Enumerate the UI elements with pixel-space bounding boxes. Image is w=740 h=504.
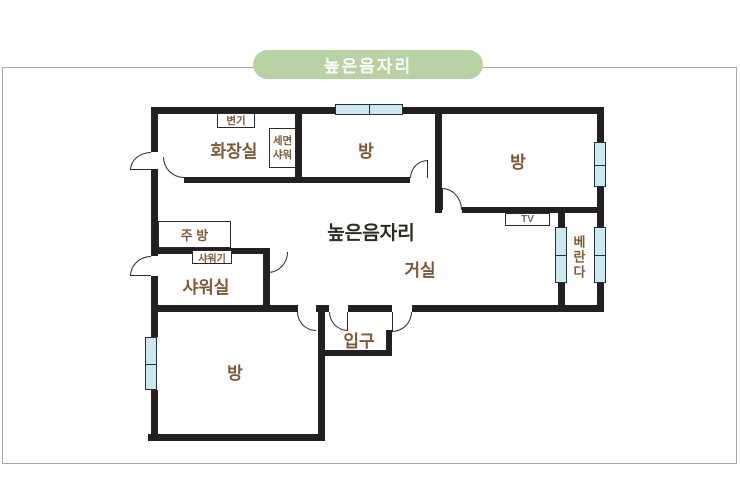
window-right-room	[594, 142, 606, 187]
washbasin-label: 세면	[273, 134, 292, 148]
window-bottom-room	[145, 337, 157, 390]
window-pane-divider	[595, 255, 605, 256]
content-frame	[2, 67, 737, 464]
shower-head-box: 샤워기	[192, 250, 232, 264]
label-entrance: 입구	[329, 327, 389, 352]
wall-veranda-left-upper	[558, 213, 565, 227]
wall-exterior-left-upper	[151, 107, 158, 152]
window-veranda-left	[555, 227, 567, 283]
wall-bottom-room-bottom	[148, 434, 325, 441]
toilet-box: 변기	[217, 113, 255, 128]
wall-exterior-right-upper	[597, 107, 604, 142]
label-bathroom: 화장실	[194, 137, 274, 162]
shower-label: 샤워	[273, 148, 292, 162]
wall-living-bottom-a	[151, 305, 298, 312]
wall-veranda-left-lower	[558, 283, 565, 305]
shower-head-label: 샤워기	[198, 250, 226, 265]
window-pane-divider	[369, 105, 370, 114]
screenshot-root: 높은음자리 변기 세면 샤워 주	[0, 0, 740, 504]
label-veranda: 베란다	[569, 231, 588, 283]
label-plan-title: 높은음자리	[311, 218, 431, 245]
label-room-top-right: 방	[488, 148, 548, 173]
label-shower-room: 샤워실	[166, 273, 246, 298]
wall-living-bottom-c	[348, 305, 392, 312]
window-veranda-right	[594, 227, 606, 283]
wall-bottom-room-right	[318, 312, 325, 441]
window-pane-divider	[146, 364, 156, 365]
window-pane-divider	[556, 255, 566, 256]
title-badge-label: 높은음자리	[324, 52, 412, 77]
toilet-label: 변기	[226, 113, 245, 128]
wall-exterior-left-mid	[151, 169, 158, 256]
wall-living-bottom-d	[412, 305, 604, 312]
wall-living-bottom-b	[316, 305, 329, 312]
wall-bathroom-divider	[295, 107, 302, 178]
label-room-bottom-left: 방	[205, 359, 265, 384]
kitchen-label: 주 방	[181, 225, 209, 244]
label-living-room: 거실	[390, 256, 450, 281]
wall-bathroom-bottom	[184, 177, 410, 183]
title-badge: 높은음자리	[253, 50, 483, 79]
wall-bottom-room-left-upper	[151, 312, 158, 337]
kitchen-box: 주 방	[158, 221, 231, 248]
wall-rooms-divider	[435, 107, 442, 213]
tv-label: TV	[521, 214, 534, 225]
label-room-top-middle: 방	[336, 137, 396, 162]
window-top	[335, 104, 403, 115]
tv-box: TV	[505, 213, 550, 226]
window-pane-divider	[595, 165, 605, 166]
